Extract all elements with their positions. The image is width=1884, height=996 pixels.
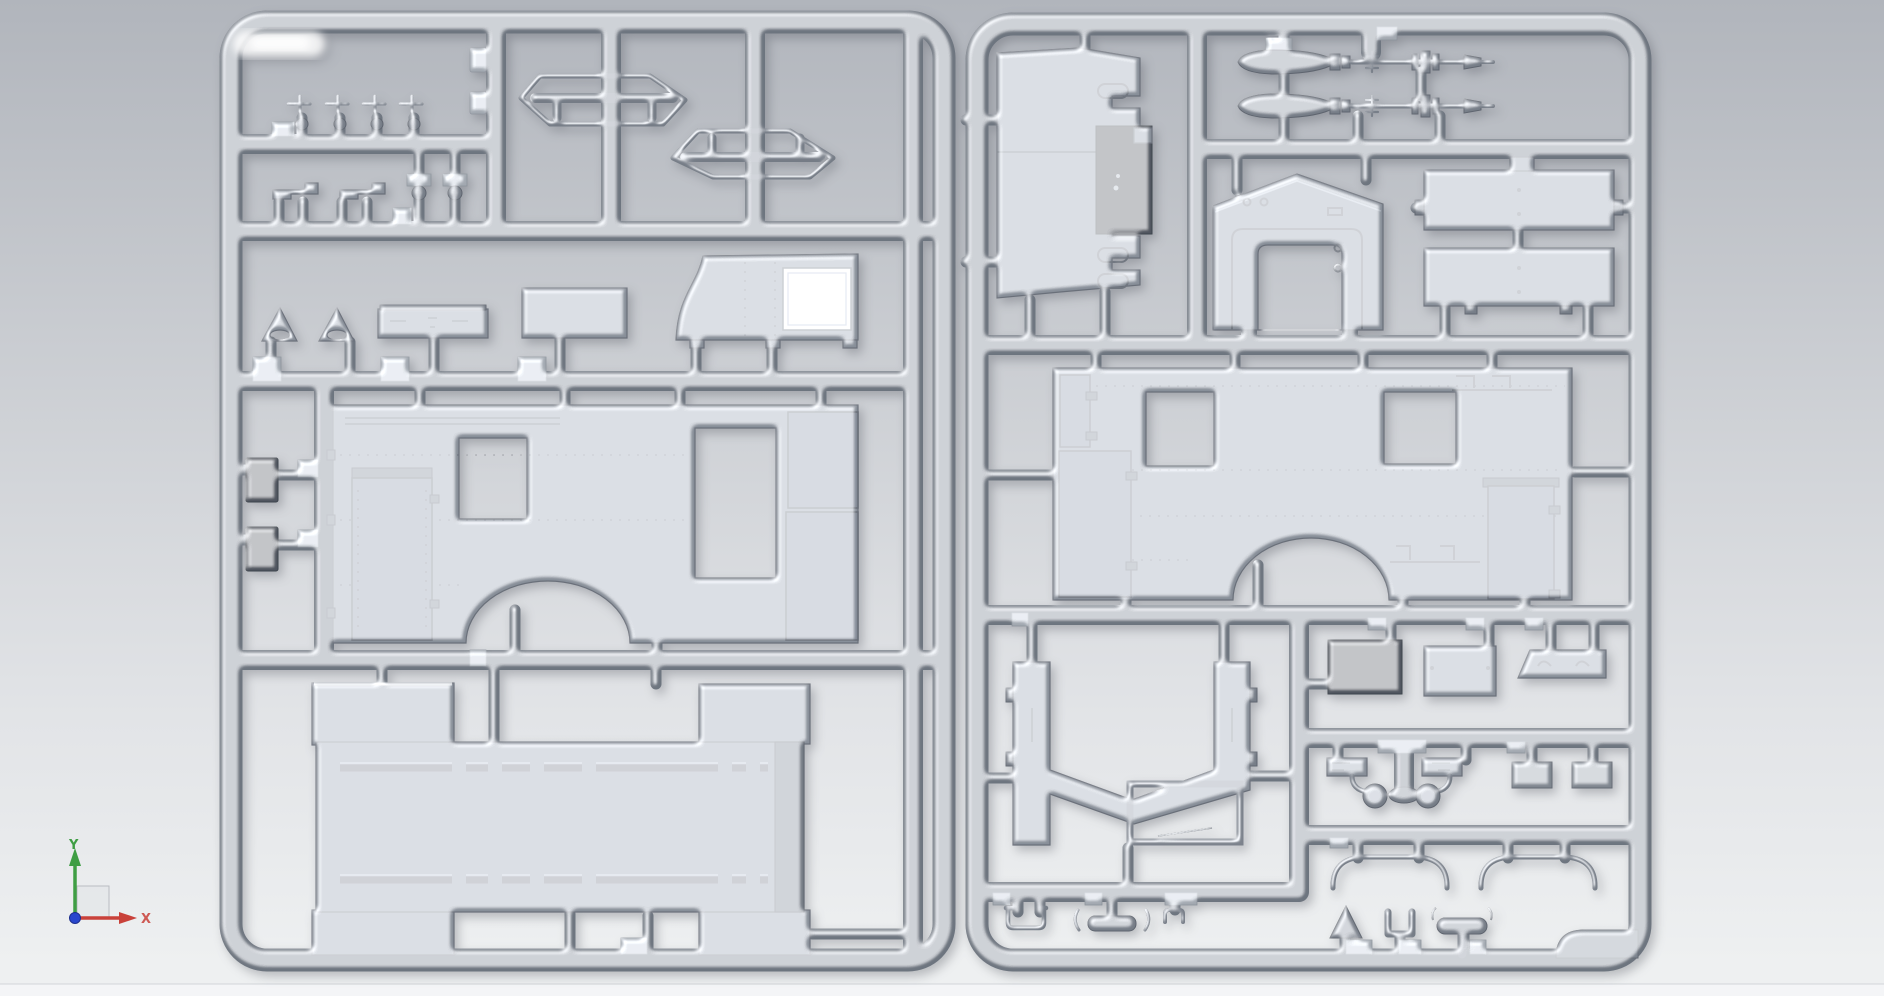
window-notch (1134, 128, 1152, 143)
cab-tab (690, 340, 704, 348)
panel-nub (1465, 306, 1477, 314)
hinge-nub (327, 450, 335, 460)
equipment-box (1424, 646, 1496, 696)
screw-pin-ball (296, 118, 308, 130)
cab-window-opening (783, 268, 851, 330)
mold-tab (1165, 893, 1197, 905)
mold-tab (253, 357, 281, 381)
hinge-clip-plate (443, 174, 467, 186)
mold-tab (298, 530, 318, 547)
equipment-tray (1518, 650, 1606, 678)
hinge-nub (1086, 432, 1097, 440)
strip-top-bar (380, 305, 486, 310)
cab-tab (843, 340, 857, 348)
cab-side-panel (676, 254, 858, 348)
small-tab-part (470, 92, 486, 114)
mold-tab (1525, 618, 1543, 630)
tub-nub (1006, 752, 1013, 766)
hinge-nub (430, 495, 439, 503)
slotted-strip (378, 309, 488, 338)
mold-tab (518, 357, 546, 381)
panel-dot (1517, 188, 1521, 192)
hinge-nub (430, 600, 439, 608)
tub-nub (1006, 688, 1013, 702)
hinge-clip-plate (407, 174, 431, 186)
bed-panel (1424, 248, 1614, 306)
hinge-nub (1549, 506, 1560, 514)
mold-tab (1377, 27, 1397, 40)
mirror-face (1368, 789, 1382, 803)
hinge-clip-ball (448, 186, 462, 200)
roof-tab (699, 684, 810, 744)
mold-tab (1012, 613, 1028, 626)
box-dot (1486, 666, 1490, 670)
plate-part (1512, 762, 1552, 788)
door-overlay (352, 478, 432, 640)
mold-tab (1466, 618, 1484, 630)
corner-wedge-part (1556, 930, 1638, 958)
viewport-footer-strip (0, 984, 1884, 996)
hinge-nub (1086, 392, 1097, 400)
mold-tab (1330, 838, 1348, 848)
hinge-nub (1549, 590, 1560, 598)
mold-tab (993, 893, 1010, 905)
tube-foot (1389, 787, 1419, 803)
tub-nub (1250, 752, 1257, 766)
storage-box (246, 527, 278, 571)
panel-dot (1517, 212, 1521, 216)
render-canvas[interactable]: Y X (0, 0, 1884, 996)
mold-tab (272, 122, 294, 136)
slotted-strip-part (378, 305, 488, 338)
screw-pin-ball (371, 118, 383, 130)
cab-tab (766, 340, 780, 348)
mold-tab (1399, 940, 1421, 954)
mold-tab (1470, 940, 1486, 954)
panel-top-tab (1510, 157, 1534, 171)
equipment-box-light (1424, 646, 1496, 696)
tub-nub (1250, 688, 1257, 702)
tee-bar (1088, 916, 1136, 931)
mold-tab (1085, 893, 1102, 905)
blank-panel (522, 288, 627, 338)
panel-nub (1614, 200, 1623, 215)
mold-tab (1368, 618, 1386, 630)
panel-nub (1560, 306, 1572, 314)
x-axis-label: X (141, 912, 151, 927)
axis-plane-indicator (77, 886, 109, 918)
cad-viewport[interactable]: Y X (0, 0, 1884, 996)
roof-side-face (775, 742, 804, 912)
equipment-box-dark (1328, 640, 1402, 694)
door-header (352, 468, 432, 478)
panel-dot (1517, 290, 1521, 294)
mirror-plate (1422, 758, 1462, 776)
hinge-nub (327, 515, 335, 525)
hinge-clip-ball (412, 186, 426, 200)
screw-pin-ball (408, 118, 420, 130)
y-axis-label: Y (68, 838, 79, 853)
door-overlay (788, 412, 858, 508)
hinge-nub (1126, 562, 1137, 570)
mold-tab (393, 208, 411, 224)
door-overlay (1488, 486, 1554, 599)
mold-tab (621, 938, 647, 954)
panel-nub (1415, 200, 1424, 215)
roof-tab (699, 910, 810, 955)
panel-dot (1517, 266, 1521, 270)
hinge-nub (327, 608, 335, 618)
origin-point (70, 913, 81, 924)
mold-tab (298, 460, 318, 477)
door-overlay (786, 512, 858, 640)
mold-tab (1378, 740, 1426, 753)
window-dot (1116, 174, 1120, 178)
window-dot (1114, 186, 1119, 191)
mold-tab (381, 357, 409, 381)
mold-tab (470, 650, 486, 666)
door-overlay (1059, 451, 1131, 597)
roof-tab (312, 683, 454, 745)
mirror-face (1421, 789, 1435, 803)
plate-part (1572, 762, 1612, 788)
box-dot (1430, 666, 1434, 670)
tray-body (1518, 650, 1606, 678)
small-tab-part (470, 48, 486, 72)
mold-tab (1507, 742, 1525, 753)
mirror-plate (1327, 758, 1367, 776)
mold-tab (1346, 940, 1372, 954)
specular-highlight-2 (250, 36, 310, 50)
storage-box (246, 458, 278, 502)
screw-pin-ball (334, 118, 346, 130)
bed-panel (1424, 170, 1614, 230)
hinge-nub (1126, 472, 1137, 480)
roof-tab (312, 910, 454, 955)
